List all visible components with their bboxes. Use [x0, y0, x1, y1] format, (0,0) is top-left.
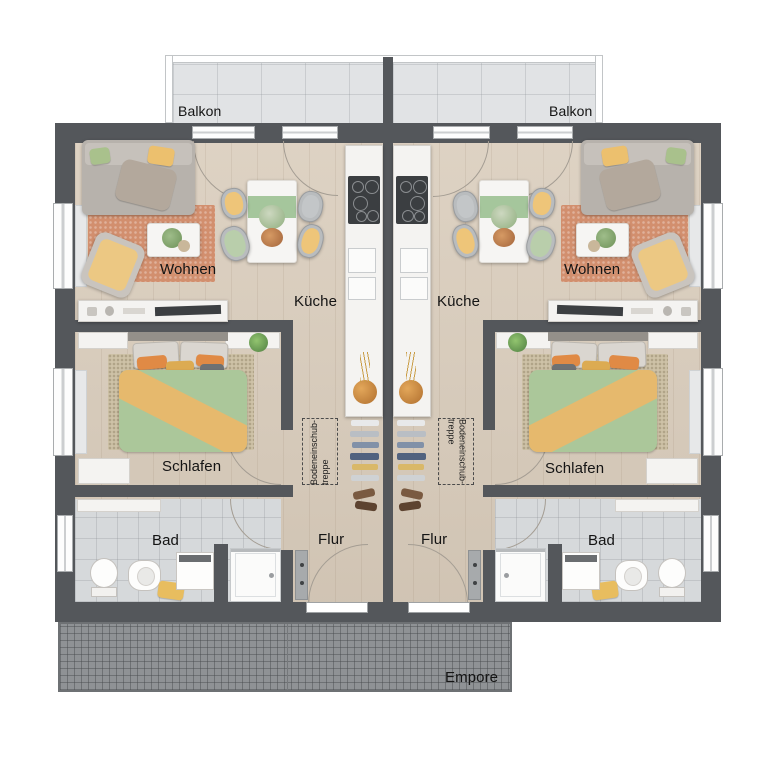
room-label-bad-left: Bad	[152, 533, 179, 548]
room-label-wohnen-right: Wohnen	[564, 262, 620, 277]
window-bedroom-left	[53, 368, 73, 456]
window-living-right	[703, 203, 723, 289]
wardrobe-left-a	[78, 332, 128, 349]
wall-bedroom-hall-left-upper	[281, 332, 293, 430]
dresser-left	[78, 458, 130, 484]
bed-duvet-right	[529, 370, 657, 452]
decor-branches-left	[360, 352, 370, 382]
kitchen-sink-left-1	[348, 248, 376, 273]
wall-bedroom-bath-right	[483, 485, 701, 497]
balcony-railing-left	[165, 55, 173, 123]
sofa-right	[581, 140, 694, 215]
cooktop-left	[348, 176, 380, 224]
window-sill-bedroom-right	[689, 370, 701, 454]
party-wall-center	[383, 123, 393, 602]
balcony-door-left-1	[192, 126, 255, 139]
balcony-railing-right	[595, 55, 603, 123]
bidet-right	[615, 560, 648, 591]
room-label-balkon-left: Balkon	[178, 104, 221, 118]
room-label-bad-right: Bad	[588, 533, 615, 548]
room-label-balkon-right: Balkon	[549, 104, 592, 118]
tv-sideboard-right	[548, 300, 698, 322]
bidet-left	[128, 560, 161, 591]
entry-door-leaf-left	[306, 602, 368, 613]
room-label-schlafen-right: Schlafen	[545, 461, 604, 476]
room-label-kueche-right: Küche	[437, 294, 480, 309]
coffee-table-left	[147, 223, 200, 257]
wall-bedroom-hall-right-upper	[483, 332, 495, 430]
plant-bedroom-left	[249, 333, 268, 352]
plant-bedroom-right	[508, 333, 527, 352]
empore-grate	[58, 622, 512, 692]
wall-bath-hall-left-lower	[281, 550, 293, 602]
washing-machine-right	[562, 552, 600, 590]
balcony-divider-wall	[383, 57, 393, 125]
bath-vanity-right	[615, 499, 699, 512]
room-label-schlafen-left: Schlafen	[162, 459, 221, 474]
attic-stairs-box-left: Bodeneinschub- treppe	[302, 418, 338, 485]
shower-right	[495, 548, 546, 602]
room-label-wohnen-left: Wohnen	[160, 262, 216, 277]
bed-headboard-left	[128, 332, 228, 341]
dresser-right	[646, 458, 698, 484]
window-bedroom-right	[703, 368, 723, 456]
decor-vase-right	[399, 380, 423, 404]
room-label-flur-right: Flur	[421, 532, 447, 547]
bed-headboard-right	[548, 332, 648, 341]
balcony-door-right-1	[433, 126, 490, 139]
shower-wall-stub-right	[548, 544, 562, 602]
hall-panel-right	[468, 550, 481, 600]
room-label-empore: Empore	[445, 670, 498, 685]
coat-rack-left	[350, 420, 380, 516]
coffee-table-right	[576, 223, 629, 257]
wall-bath-hall-right-lower	[483, 550, 495, 602]
coat-rack-right	[396, 420, 426, 516]
kitchen-sink-left-2	[348, 277, 376, 300]
shower-wall-stub-left	[214, 544, 228, 602]
sofa-left	[82, 140, 195, 215]
decor-vase-left	[353, 380, 377, 404]
balcony-door-right-2	[517, 126, 573, 139]
bed-duvet-left	[119, 370, 247, 452]
floor-plan-canvas: Balkon Balkon	[0, 0, 775, 760]
attic-stairs-box-right: Bodeneinschub- treppe	[438, 418, 474, 485]
decor-branches-right	[406, 352, 416, 382]
cooktop-right	[396, 176, 428, 224]
washing-machine-left	[176, 552, 214, 590]
attic-stairs-label-line1-right: Bodeneinschub-	[456, 419, 467, 485]
toilet-left	[88, 556, 120, 596]
balcony-door-left-2	[282, 126, 338, 139]
tv-sideboard-left	[78, 300, 228, 322]
wall-bedroom-bath-left	[75, 485, 293, 497]
dining-table-left	[247, 180, 297, 263]
shower-left	[230, 548, 281, 602]
bed-pillow-right-orange-1	[608, 355, 639, 371]
attic-stairs-label-line2-right: treppe	[445, 419, 456, 485]
window-sill-bedroom-left	[75, 370, 87, 454]
wardrobe-right-a	[648, 332, 698, 349]
room-label-flur-left: Flur	[318, 532, 344, 547]
dining-table-right	[479, 180, 529, 263]
window-bath-left	[57, 515, 73, 572]
hall-panel-left	[295, 550, 308, 600]
kitchen-sink-right-1	[400, 248, 428, 273]
toilet-right	[656, 556, 688, 596]
bed-pillow-left-orange-1	[136, 355, 167, 371]
bath-vanity-left	[77, 499, 161, 512]
entry-door-leaf-right	[408, 602, 470, 613]
room-label-kueche-left: Küche	[294, 294, 337, 309]
outer-wall-bottom	[55, 602, 721, 622]
window-bath-right	[703, 515, 719, 572]
attic-stairs-label-line2: treppe	[320, 419, 331, 485]
attic-stairs-label-line1: Bodeneinschub-	[309, 419, 320, 485]
kitchen-sink-right-2	[400, 277, 428, 300]
window-living-left	[53, 203, 73, 289]
